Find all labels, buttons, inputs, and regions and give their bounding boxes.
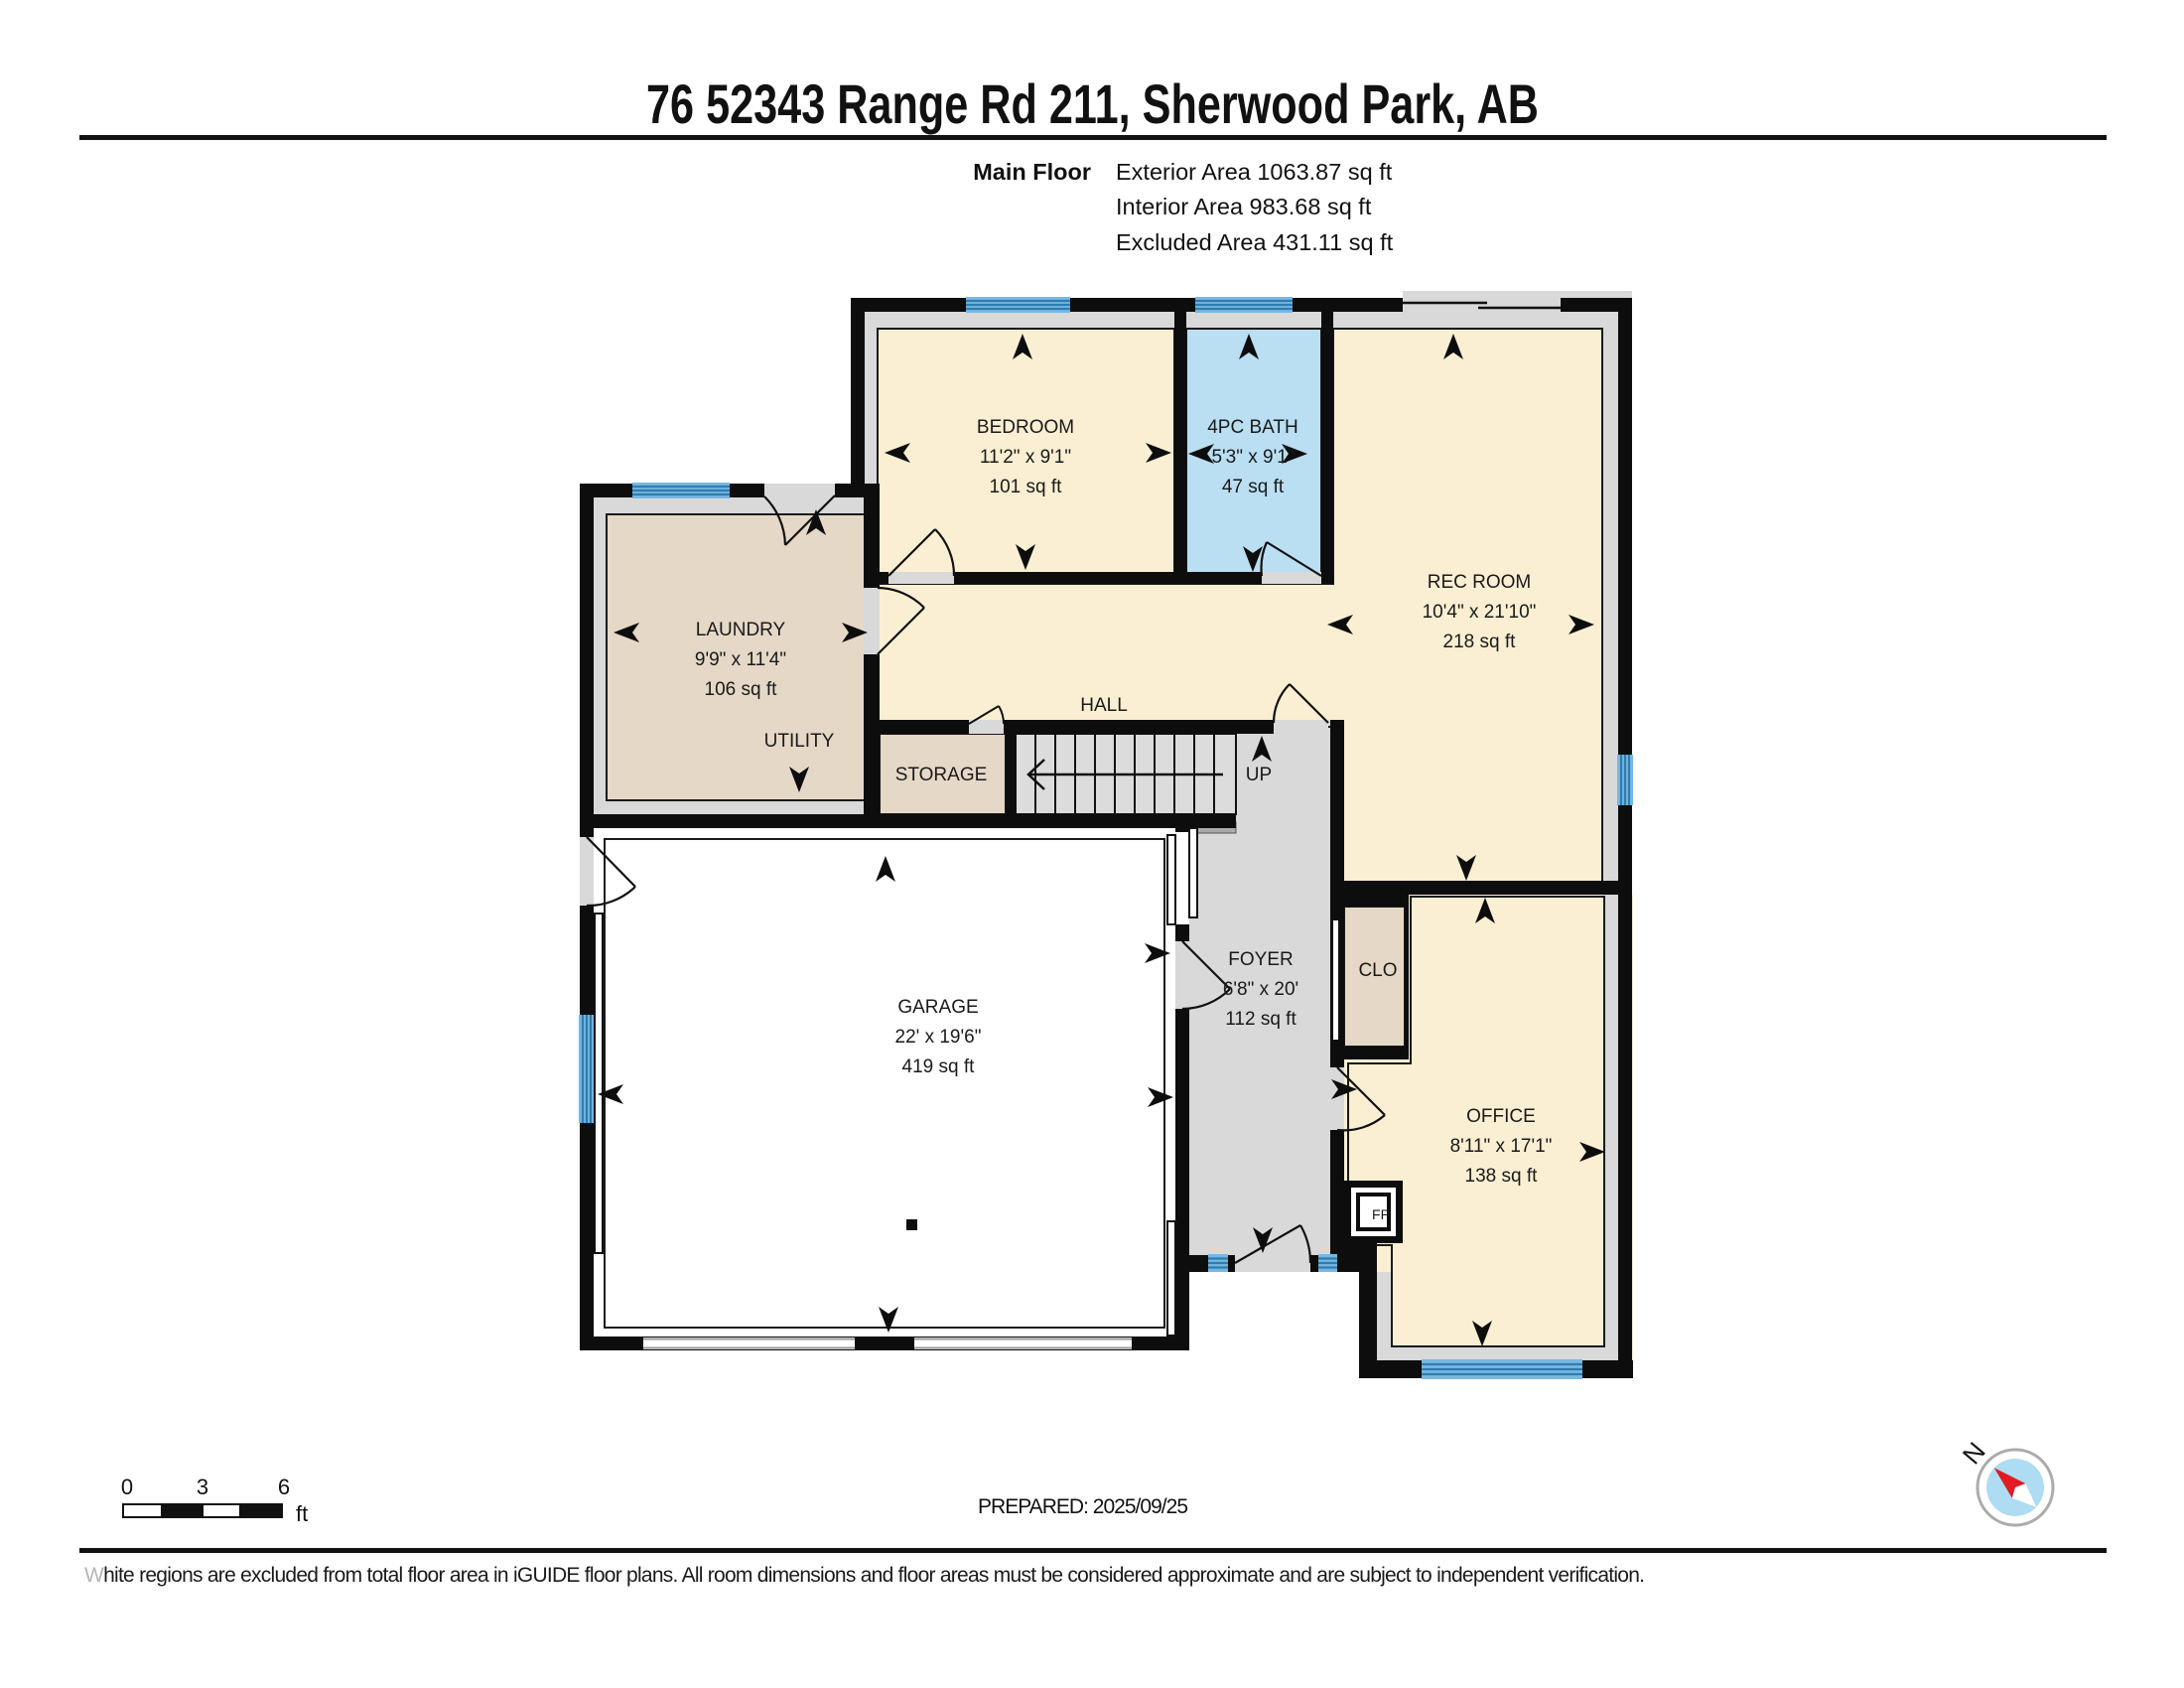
svg-text:ft: ft <box>296 1501 308 1526</box>
svg-text:PREPARED: 2025/09/25: PREPARED: 2025/09/25 <box>978 1495 1188 1518</box>
svg-text:Excluded Area 431.11 sq ft: Excluded Area 431.11 sq ft <box>1116 229 1394 255</box>
svg-text:138 sq ft: 138 sq ft <box>1465 1166 1539 1187</box>
svg-text:10'4" x 21'10": 10'4" x 21'10" <box>1423 602 1537 623</box>
svg-text:UP: UP <box>1246 765 1272 785</box>
svg-text:CLO: CLO <box>1358 960 1397 981</box>
svg-text:6: 6 <box>278 1475 290 1499</box>
svg-text:47 sq ft: 47 sq ft <box>1222 477 1285 497</box>
svg-text:76 52343 Range Rd 211, Sherwoo: 76 52343 Range Rd 211, Sherwood Park, AB <box>646 72 1539 135</box>
svg-text:LAUNDRY: LAUNDRY <box>696 620 786 640</box>
svg-text:101 sq ft: 101 sq ft <box>990 477 1063 497</box>
svg-text:FOYER: FOYER <box>1228 949 1293 970</box>
svg-text:106 sq ft: 106 sq ft <box>705 679 778 700</box>
svg-text:419 sq ft: 419 sq ft <box>902 1056 976 1077</box>
svg-text:White regions are excluded fro: White regions are excluded from total fl… <box>84 1564 1645 1587</box>
svg-text:HALL: HALL <box>1080 695 1128 716</box>
svg-text:4PC BATH: 4PC BATH <box>1207 417 1298 438</box>
svg-text:6'8" x 20': 6'8" x 20' <box>1223 979 1298 1000</box>
svg-text:5'3" x 9'1": 5'3" x 9'1" <box>1211 447 1294 468</box>
svg-text:22' x 19'6": 22' x 19'6" <box>895 1027 982 1048</box>
svg-text:STORAGE: STORAGE <box>895 765 988 785</box>
svg-text:11'2" x 9'1": 11'2" x 9'1" <box>980 447 1071 468</box>
svg-text:GARAGE: GARAGE <box>897 997 978 1018</box>
svg-text:Interior Area 983.68 sq ft: Interior Area 983.68 sq ft <box>1116 194 1372 219</box>
svg-text:Main Floor: Main Floor <box>973 159 1091 185</box>
svg-text:REC ROOM: REC ROOM <box>1428 572 1532 593</box>
svg-text:218 sq ft: 218 sq ft <box>1443 632 1517 652</box>
svg-text:112 sq ft: 112 sq ft <box>1225 1009 1297 1030</box>
svg-text:BEDROOM: BEDROOM <box>977 417 1074 438</box>
svg-text:3: 3 <box>197 1475 208 1499</box>
svg-text:0: 0 <box>121 1475 133 1499</box>
svg-text:9'9" x 11'4": 9'9" x 11'4" <box>695 649 786 670</box>
svg-text:OFFICE: OFFICE <box>1466 1106 1536 1127</box>
svg-text:FP: FP <box>1372 1206 1390 1222</box>
svg-text:Exterior Area 1063.87 sq ft: Exterior Area 1063.87 sq ft <box>1116 159 1393 185</box>
svg-text:UTILITY: UTILITY <box>764 731 835 752</box>
svg-text:8'11" x 17'1": 8'11" x 17'1" <box>1450 1136 1553 1157</box>
